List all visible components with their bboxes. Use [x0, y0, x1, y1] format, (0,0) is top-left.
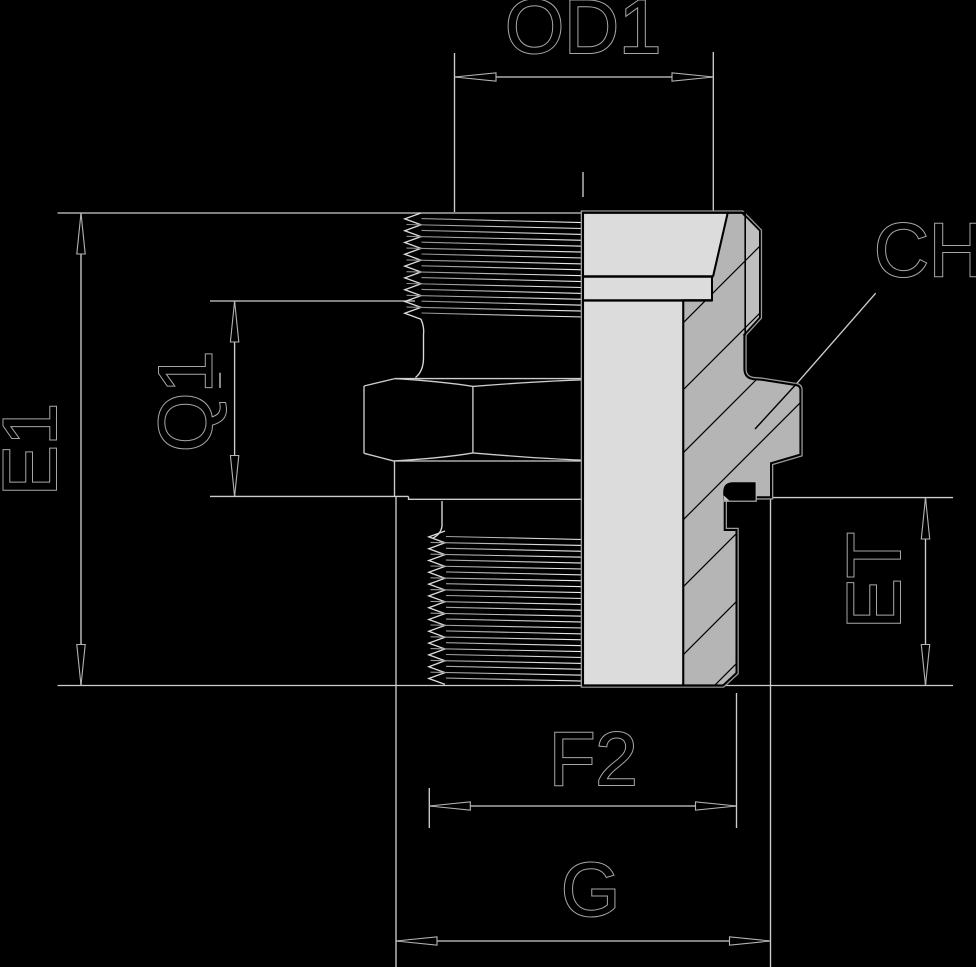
svg-text:F2: F2 — [549, 717, 638, 802]
svg-text:Q1: Q1 — [144, 351, 229, 452]
svg-text:ET: ET — [832, 532, 917, 629]
svg-text:G: G — [561, 848, 620, 933]
svg-text:CH: CH — [874, 209, 976, 294]
svg-text:E1: E1 — [0, 403, 73, 496]
svg-text:OD1: OD1 — [505, 0, 661, 70]
